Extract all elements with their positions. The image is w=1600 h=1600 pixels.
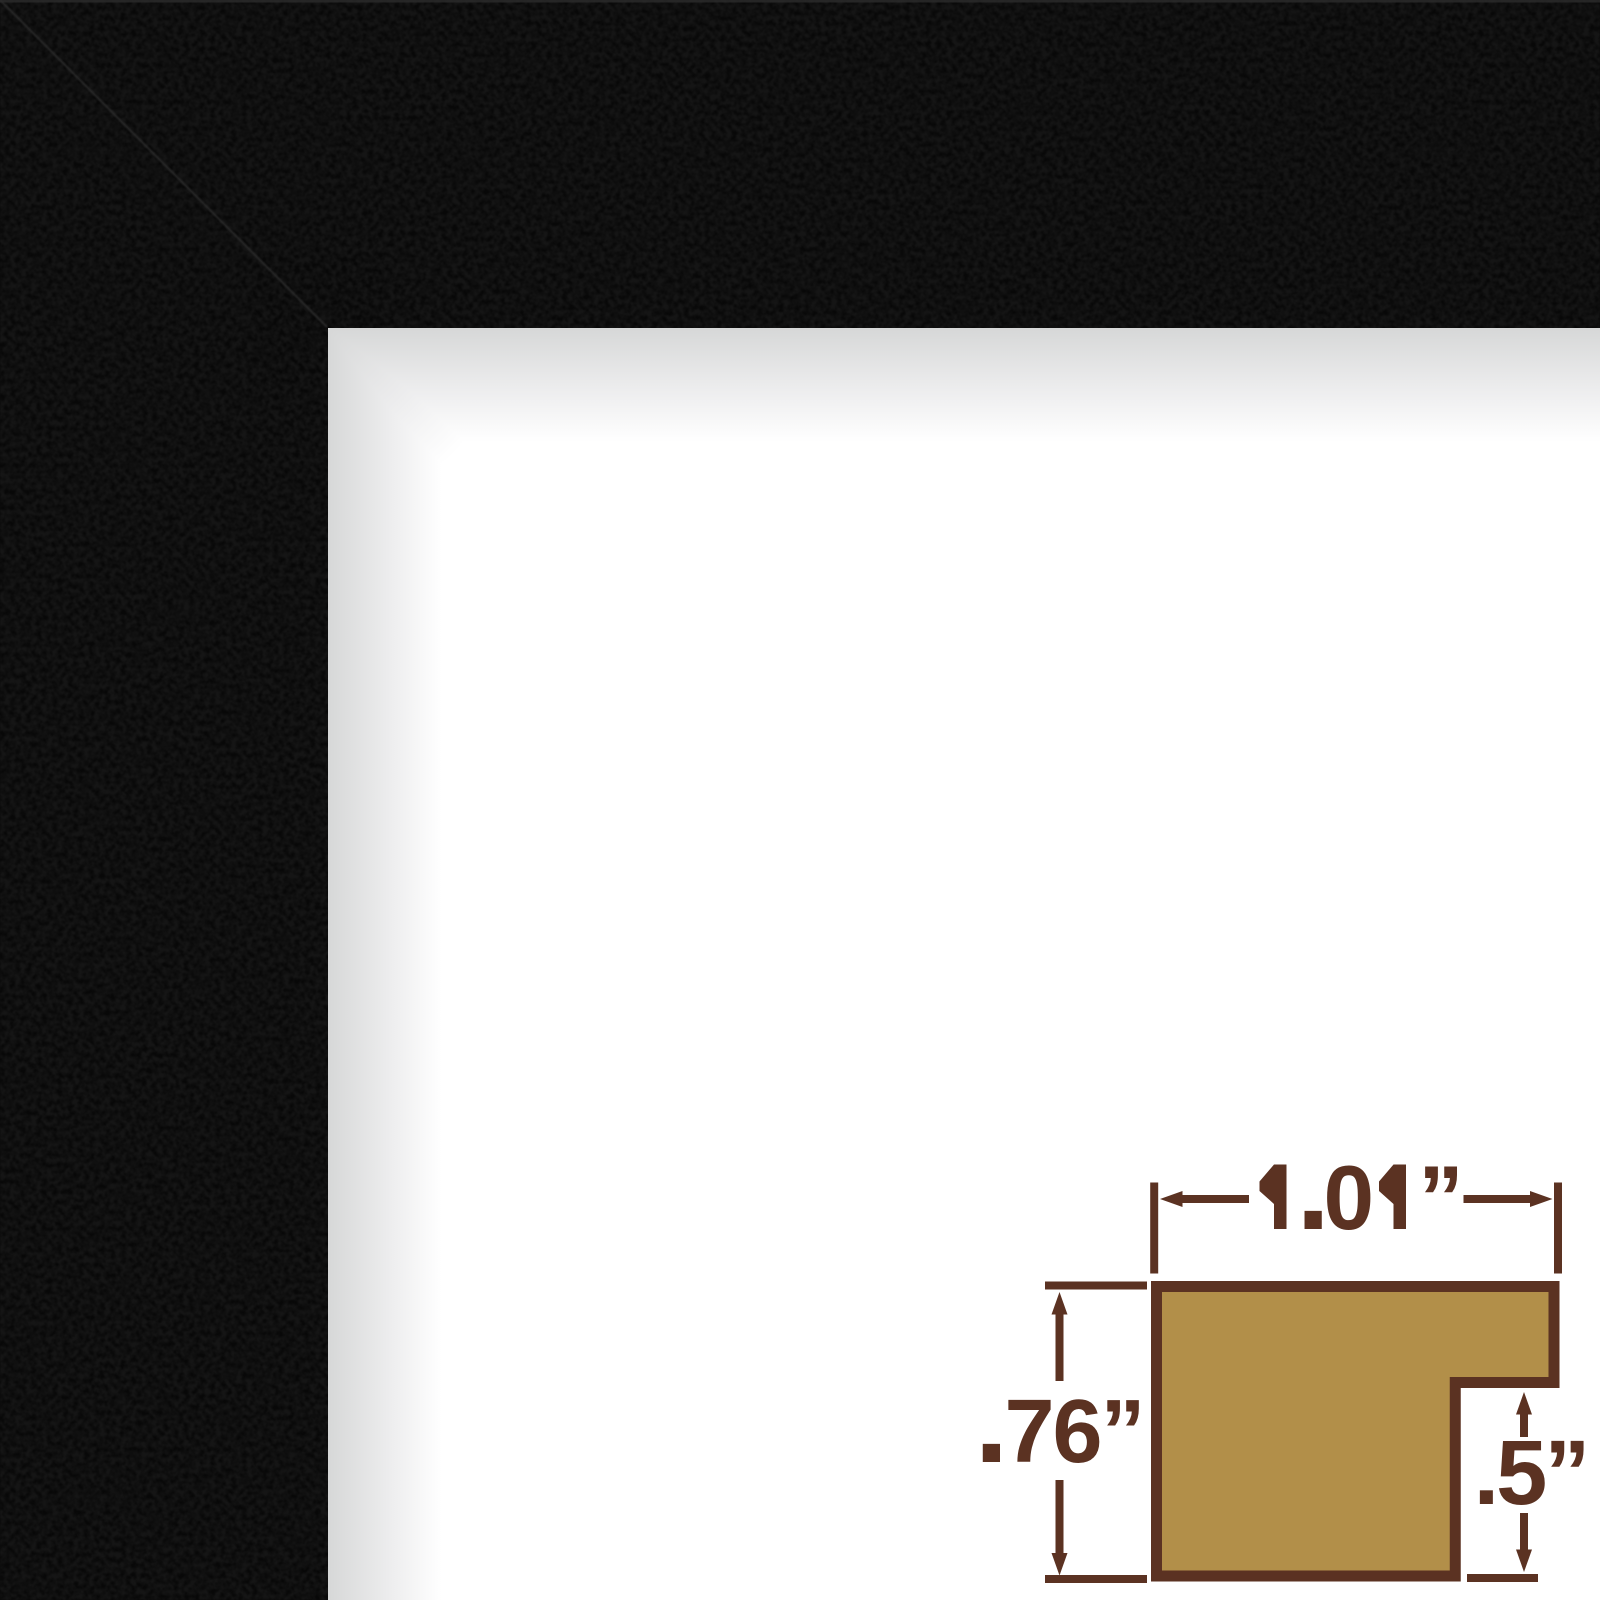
- svg-text:.: .: [975, 1352, 1009, 1488]
- svg-text:76”: 76”: [1004, 1382, 1143, 1482]
- svg-text:0: 0: [1323, 1148, 1374, 1249]
- svg-text:”: ”: [1418, 1148, 1464, 1249]
- svg-text:.5”: .5”: [1474, 1422, 1588, 1524]
